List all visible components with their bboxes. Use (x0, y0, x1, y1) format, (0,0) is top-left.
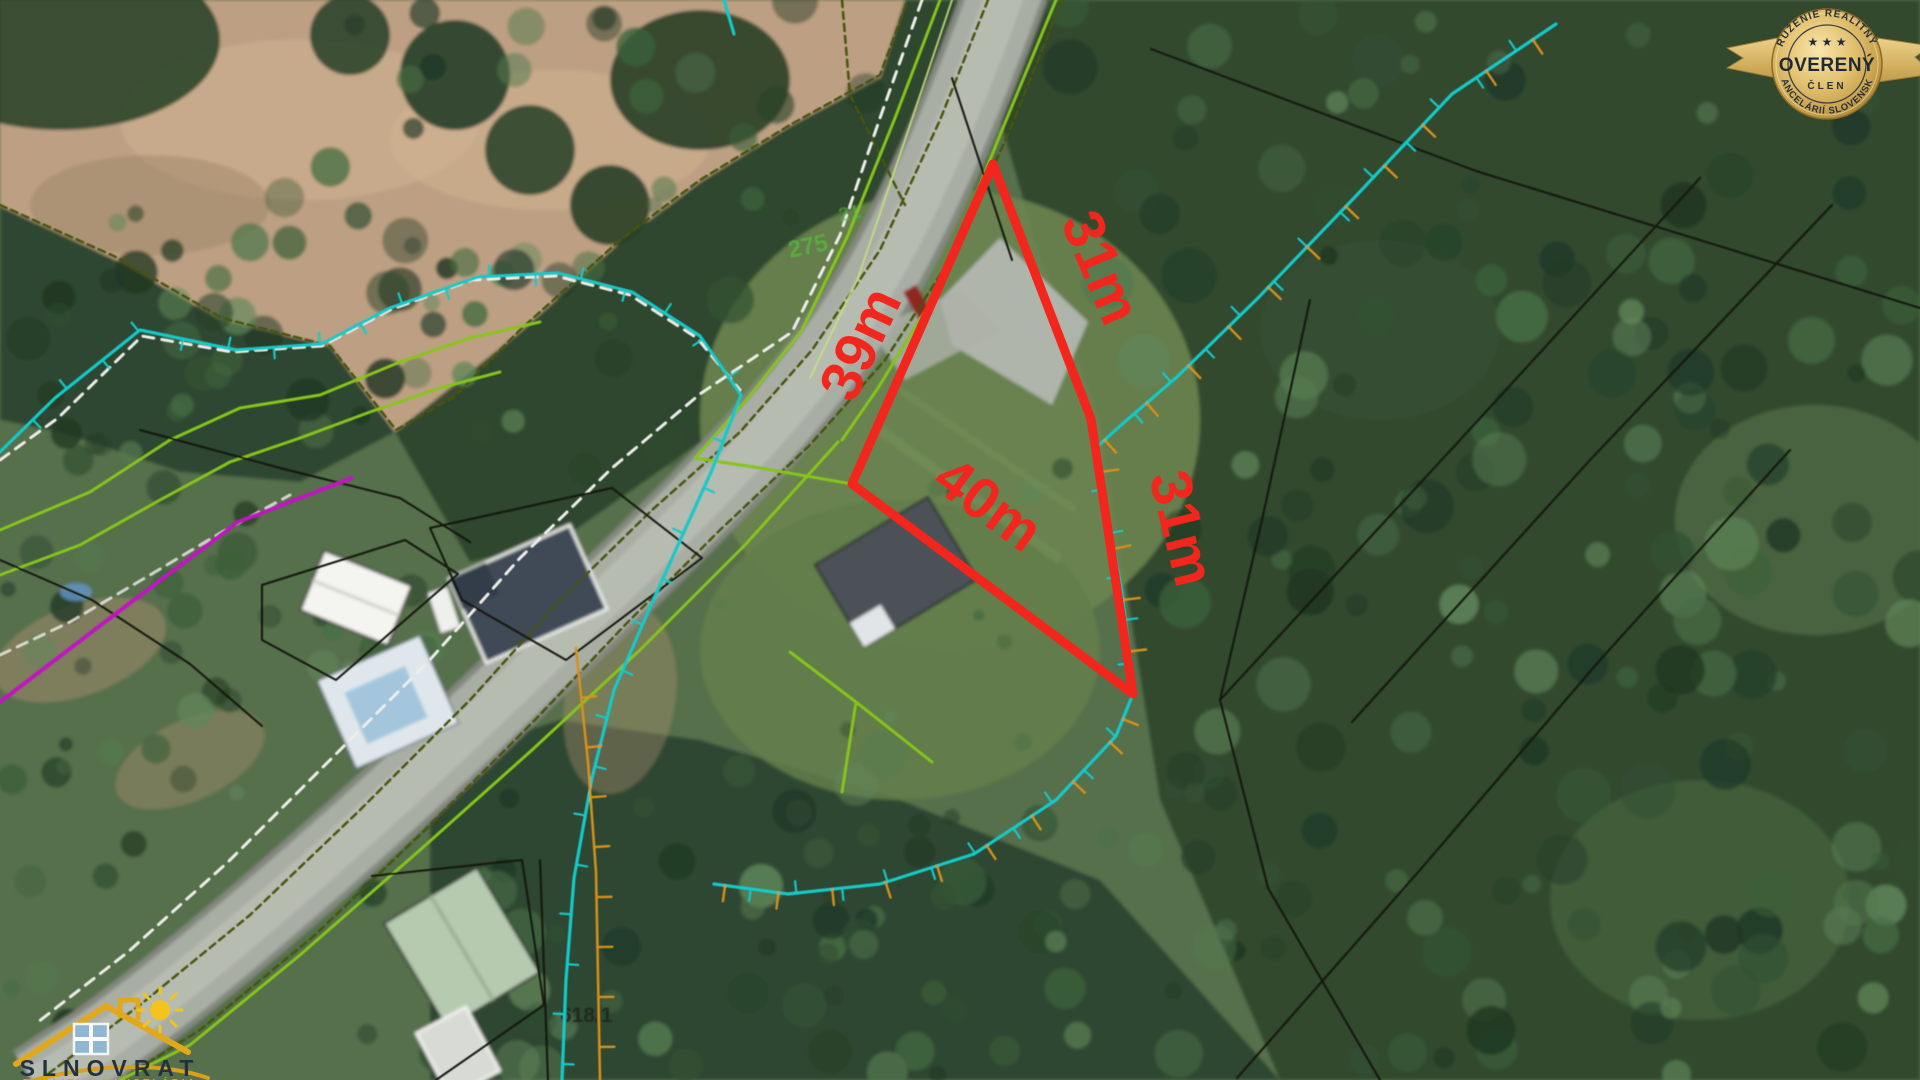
tree-blob (1187, 24, 1232, 69)
tree-blob (185, 355, 221, 391)
tree-blob (1310, 458, 1334, 482)
tree-blob (47, 303, 72, 328)
tree-blob (1458, 555, 1483, 580)
tree-blob (1705, 517, 1758, 570)
tree-blob (1519, 736, 1548, 765)
tree-blob (594, 339, 632, 377)
tree-blob (127, 205, 144, 222)
parcel-number-label: 618/1 (560, 1004, 613, 1027)
tree-blob (195, 293, 233, 331)
tree-blob (1557, 768, 1611, 822)
tree-blob (90, 433, 113, 456)
tree-blob (782, 983, 826, 1027)
tree-blob (1747, 870, 1794, 917)
tree-blob (1232, 451, 1259, 478)
tree-blob (857, 824, 880, 847)
tree-blob (6, 317, 50, 361)
tree-blob (944, 809, 960, 825)
tree-clump (485, 105, 575, 195)
tree-blob (773, 789, 817, 833)
tree-blob (59, 737, 73, 751)
tree-blob (1192, 925, 1237, 970)
tree-blob (808, 1030, 852, 1074)
tree-blob (167, 593, 203, 629)
tree-blob (178, 693, 214, 729)
tree-blob (1045, 931, 1066, 952)
tree-blob (1650, 531, 1694, 575)
tree-blob (1064, 1022, 1091, 1049)
survey-tick-mark (563, 1064, 574, 1065)
tree-blob (1320, 247, 1338, 265)
tree-blob (1462, 175, 1480, 193)
tree-blob (1621, 763, 1676, 818)
survey-tick-mark (274, 347, 275, 358)
tree-blob (727, 973, 768, 1014)
tree-blob (1415, 11, 1436, 32)
tree-blob (782, 209, 799, 226)
tree-blob (1568, 908, 1601, 941)
tree-blob (740, 895, 764, 919)
tree-blob (817, 943, 838, 964)
tree-blob (0, 582, 15, 597)
tree-blob (1275, 375, 1318, 418)
tree-blob (1522, 698, 1546, 722)
tree-blob (1388, 1033, 1427, 1072)
tree-blob (1451, 645, 1473, 667)
tree-blob (51, 418, 82, 449)
tree-blob (676, 53, 716, 93)
badge-stars: ★ ★ ★ (1808, 35, 1847, 49)
tree-blob (1326, 91, 1348, 113)
tree-blob (1619, 299, 1644, 324)
tree-blob (204, 555, 225, 576)
survey-tick-mark (1125, 618, 1137, 620)
tree-blob (1043, 39, 1098, 94)
tree-blob (229, 785, 244, 800)
tree-blob (141, 734, 170, 763)
tree-blob (1847, 364, 1865, 382)
tree-blob (846, 73, 886, 113)
tree-blob (616, 27, 655, 66)
tree-blob (1617, 667, 1638, 688)
tree-blob (1721, 345, 1768, 392)
tree-blob (1537, 834, 1587, 884)
tree-blob (707, 276, 754, 323)
tree-blob (265, 178, 305, 218)
tree-blob (824, 985, 845, 1006)
tree-blob (1832, 503, 1872, 543)
tree-blob (1288, 546, 1336, 594)
tree-blob (1357, 298, 1395, 336)
tree-blob (3, 980, 20, 997)
tree-blob (499, 788, 519, 808)
tree-blob (1540, 241, 1575, 276)
parcel-number-label: 21 (836, 201, 862, 227)
tree-blob (1858, 983, 1889, 1014)
tree-blob (1843, 728, 1888, 773)
tree-blob (1257, 862, 1280, 885)
tree-blob (1656, 645, 1705, 694)
tree-blob (146, 470, 181, 505)
tree-blob (272, 226, 306, 260)
tree-blob (1674, 597, 1722, 645)
tree-blob (1661, 182, 1707, 228)
tree-blob (908, 814, 930, 836)
tree-blob (647, 197, 663, 213)
tree-blob (100, 268, 125, 293)
tree-blob (74, 658, 91, 675)
tree-blob (462, 301, 488, 327)
tree-clump (570, 165, 650, 245)
badge-subtitle: ČLEN (1807, 79, 1846, 92)
tree-blob (1348, 78, 1378, 108)
tree-blob (1766, 518, 1801, 553)
tree-blob (1660, 997, 1681, 1018)
tree-blob (493, 249, 534, 290)
tree-blob (1181, 840, 1215, 874)
tree-blob (1817, 1022, 1867, 1072)
tree-blob (896, 1032, 935, 1071)
survey-tick-mark (536, 274, 537, 285)
tree-blob (121, 831, 147, 857)
survey-tick-mark (795, 881, 796, 893)
tree-blob (1626, 22, 1651, 47)
tree-blob (1117, 335, 1171, 389)
tree-blob (638, 1022, 672, 1056)
tree-blob (1709, 418, 1730, 439)
tree-blob (1260, 935, 1285, 960)
tree-blob (1883, 286, 1920, 324)
tree-blob (883, 710, 897, 724)
tree-blob (1195, 709, 1241, 755)
tree-blob (1407, 900, 1442, 935)
tree-blob (723, 755, 755, 787)
tree-blob (1302, 813, 1338, 849)
tree-blob (586, 5, 622, 41)
tree-blob (382, 218, 428, 264)
tree-blob (24, 960, 59, 995)
tree-blob (1257, 657, 1311, 711)
tree-blob (1697, 102, 1718, 123)
tree-blob (1386, 869, 1409, 892)
tree-blob (1833, 176, 1866, 209)
tree-blob (1514, 650, 1558, 694)
survey-tick-mark (832, 889, 834, 905)
tree-blob (1060, 879, 1090, 909)
tree-blob (1739, 934, 1788, 983)
tree-blob (1585, 542, 1610, 567)
tree-blob (507, 8, 545, 46)
tree-blob (1567, 644, 1608, 685)
tree-blob (344, 202, 372, 230)
tree-blob (1723, 477, 1753, 507)
tree-blob (231, 223, 269, 261)
tree-blob (1496, 291, 1548, 343)
tree-blob (1165, 982, 1183, 1000)
tree-blob (1401, 55, 1420, 74)
tree-blob (973, 610, 984, 621)
tree-blob (629, 79, 664, 114)
tree-blob (757, 86, 794, 123)
tree-blob (109, 214, 127, 232)
tree-blob (1788, 317, 1835, 364)
tree-blob (311, 147, 351, 187)
tree-blob (1345, 594, 1367, 616)
tree-blob (997, 634, 1012, 649)
survey-tick-mark (567, 964, 578, 965)
map-canvas: 21 275 618/1 39m 31m 31m 40m (0, 0, 1920, 1080)
ribbon-right (1877, 38, 1920, 82)
tree-blob (1747, 443, 1789, 485)
tree-blob (1258, 145, 1305, 192)
survey-tick-mark (319, 333, 320, 344)
tree-blob (922, 981, 946, 1005)
tree-blob (1014, 734, 1031, 751)
tree-blob (1139, 194, 1180, 235)
tree-blob (633, 797, 654, 818)
tree-blob (1493, 387, 1533, 427)
tree-blob (170, 766, 197, 793)
tree-blob (741, 187, 765, 211)
tree-blob (1052, 458, 1073, 479)
tree-blob (1173, 125, 1199, 151)
tree-blob (401, 358, 432, 389)
tree-blob (93, 863, 119, 889)
tree-blob (548, 925, 566, 943)
tree-blob (568, 452, 601, 485)
logo-tagline: REALITNÁ KANCELÁRIA (23, 1076, 198, 1080)
survey-tick-mark (489, 265, 490, 276)
tree-blob (1624, 473, 1650, 499)
tree-blob (1588, 349, 1637, 398)
tree-blob (930, 882, 957, 909)
logo-sun (138, 988, 182, 1032)
tree-blob (849, 930, 878, 959)
tree-blob (804, 838, 834, 868)
tree-blob (1098, 827, 1119, 848)
satellite-photo-layer (0, 0, 1920, 1080)
tree-blob (98, 739, 124, 765)
tree-blob (497, 53, 531, 87)
tree-blob (171, 394, 194, 417)
tree-blob (1044, 968, 1085, 1009)
tree-blob (1434, 1047, 1455, 1068)
tree-blob (404, 237, 422, 255)
tree-blob (941, 997, 967, 1023)
tree-blob (659, 843, 696, 880)
tree-blob (1834, 880, 1879, 925)
tree-blob (1624, 425, 1661, 462)
survey-tick-mark (594, 846, 609, 847)
tree-blob (990, 1036, 1020, 1066)
tree-blob (1484, 600, 1508, 624)
tree-blob (1674, 390, 1715, 431)
survey-tick-mark (581, 696, 596, 698)
tree-blob (14, 865, 46, 897)
tree-blob (420, 312, 446, 338)
tree-blob (1523, 875, 1541, 893)
tree-blob (1391, 712, 1432, 753)
tree-blob (365, 358, 405, 398)
tree-blob (1871, 852, 1889, 870)
tree-blob (1472, 432, 1526, 486)
tree-blob (1357, 514, 1399, 556)
tree-blob (1129, 832, 1164, 867)
tree-blob (1700, 739, 1751, 790)
tree-blob (1248, 516, 1289, 557)
tree-blob (1185, 783, 1205, 803)
tree-blob (396, 66, 423, 93)
tree-blob (759, 938, 777, 956)
tree-blob (1281, 489, 1314, 522)
aerial-listing-image: 21 275 618/1 39m 31m 31m 40m (0, 0, 1920, 1080)
tree-blob (1679, 274, 1707, 302)
tree-blob (403, 118, 424, 139)
tree-blob (1492, 877, 1520, 905)
tree-blob (1707, 152, 1753, 198)
tree-blob (1606, 234, 1646, 274)
tree-blob (161, 239, 184, 262)
tree-blob (1155, 1030, 1203, 1078)
tree-blob (470, 421, 491, 442)
tree-blob (1467, 1006, 1516, 1055)
survey-tick-mark (560, 914, 571, 915)
tree-blob (357, 1024, 377, 1044)
tree-blob (1426, 224, 1463, 261)
tree-blob (344, 14, 365, 35)
tree-blob (1476, 265, 1508, 297)
tree-blob (1832, 571, 1878, 617)
survey-tick-mark (587, 746, 602, 748)
tree-blob (1678, 922, 1697, 941)
tree-blob (1705, 915, 1744, 954)
tree-blob (56, 759, 71, 774)
badge-title: OVERENÝ (1779, 54, 1875, 76)
tree-blob (1863, 917, 1899, 953)
tree-blob (205, 265, 232, 292)
tree-blob (644, 426, 685, 467)
tree-blob (715, 598, 727, 610)
tree-blob (1333, 373, 1356, 396)
tree-blob (450, 248, 479, 277)
tree-blob (904, 836, 936, 868)
tree-blob (1296, 722, 1346, 772)
tree-blob (599, 313, 617, 331)
tree-blob (1457, 199, 1479, 221)
survey-tick-mark (591, 796, 606, 797)
tree-blob (1862, 335, 1913, 386)
tree-blob (1316, 185, 1358, 227)
survey-tick-mark (554, 1014, 565, 1015)
tree-blob (1161, 248, 1217, 304)
tree-blob (502, 410, 525, 433)
tree-blob (1379, 220, 1426, 267)
tree-blob (1177, 95, 1206, 124)
survey-tick-mark (842, 888, 843, 900)
